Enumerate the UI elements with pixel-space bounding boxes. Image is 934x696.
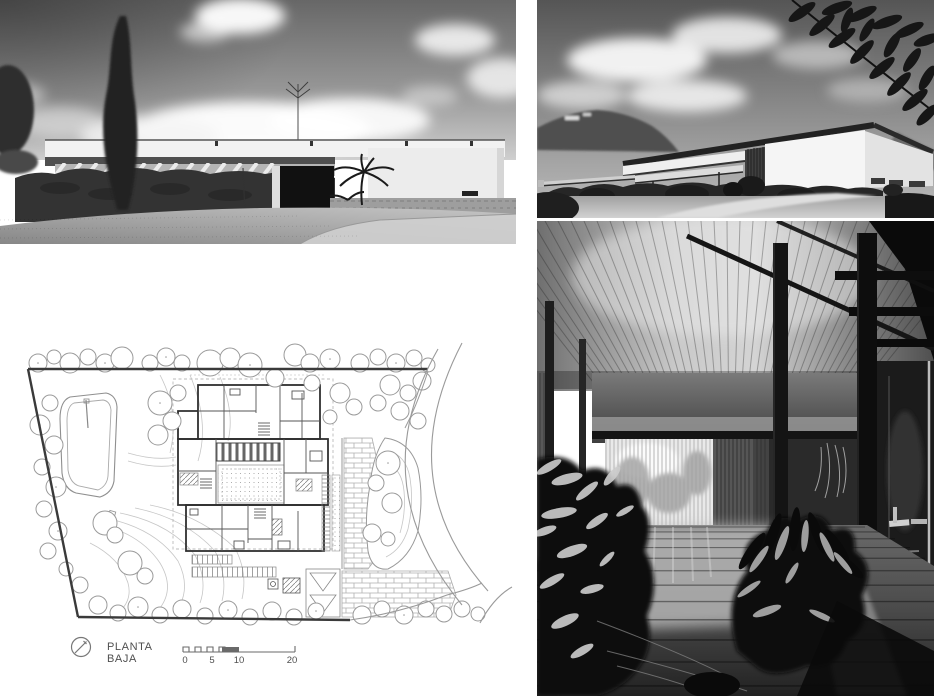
scale-tick-5: 5 (209, 655, 214, 666)
scale-tick-10: 10 (234, 655, 245, 666)
louver-roof (216, 443, 280, 461)
garage-opening (280, 166, 334, 212)
plan-title: PLANTA BAJA (107, 641, 152, 665)
scale-tick-20: 20 (287, 655, 298, 666)
scale-bar: 0 5 10 20 (182, 636, 307, 666)
photo-side-exterior (537, 0, 934, 218)
setback-line (173, 379, 333, 549)
site-plan-drawing (10, 333, 515, 633)
scale-tick-0: 0 (182, 655, 187, 666)
swimming-pool (60, 393, 117, 528)
photo-interior-corridor (537, 221, 934, 696)
courtyard (218, 465, 284, 503)
back-wall (592, 373, 857, 443)
north-arrow-icon (70, 636, 92, 658)
photo-credit-mark (462, 191, 478, 196)
book-page: PLANTA BAJA 0 5 10 20 (0, 0, 934, 696)
photo-front-exterior (0, 0, 516, 244)
